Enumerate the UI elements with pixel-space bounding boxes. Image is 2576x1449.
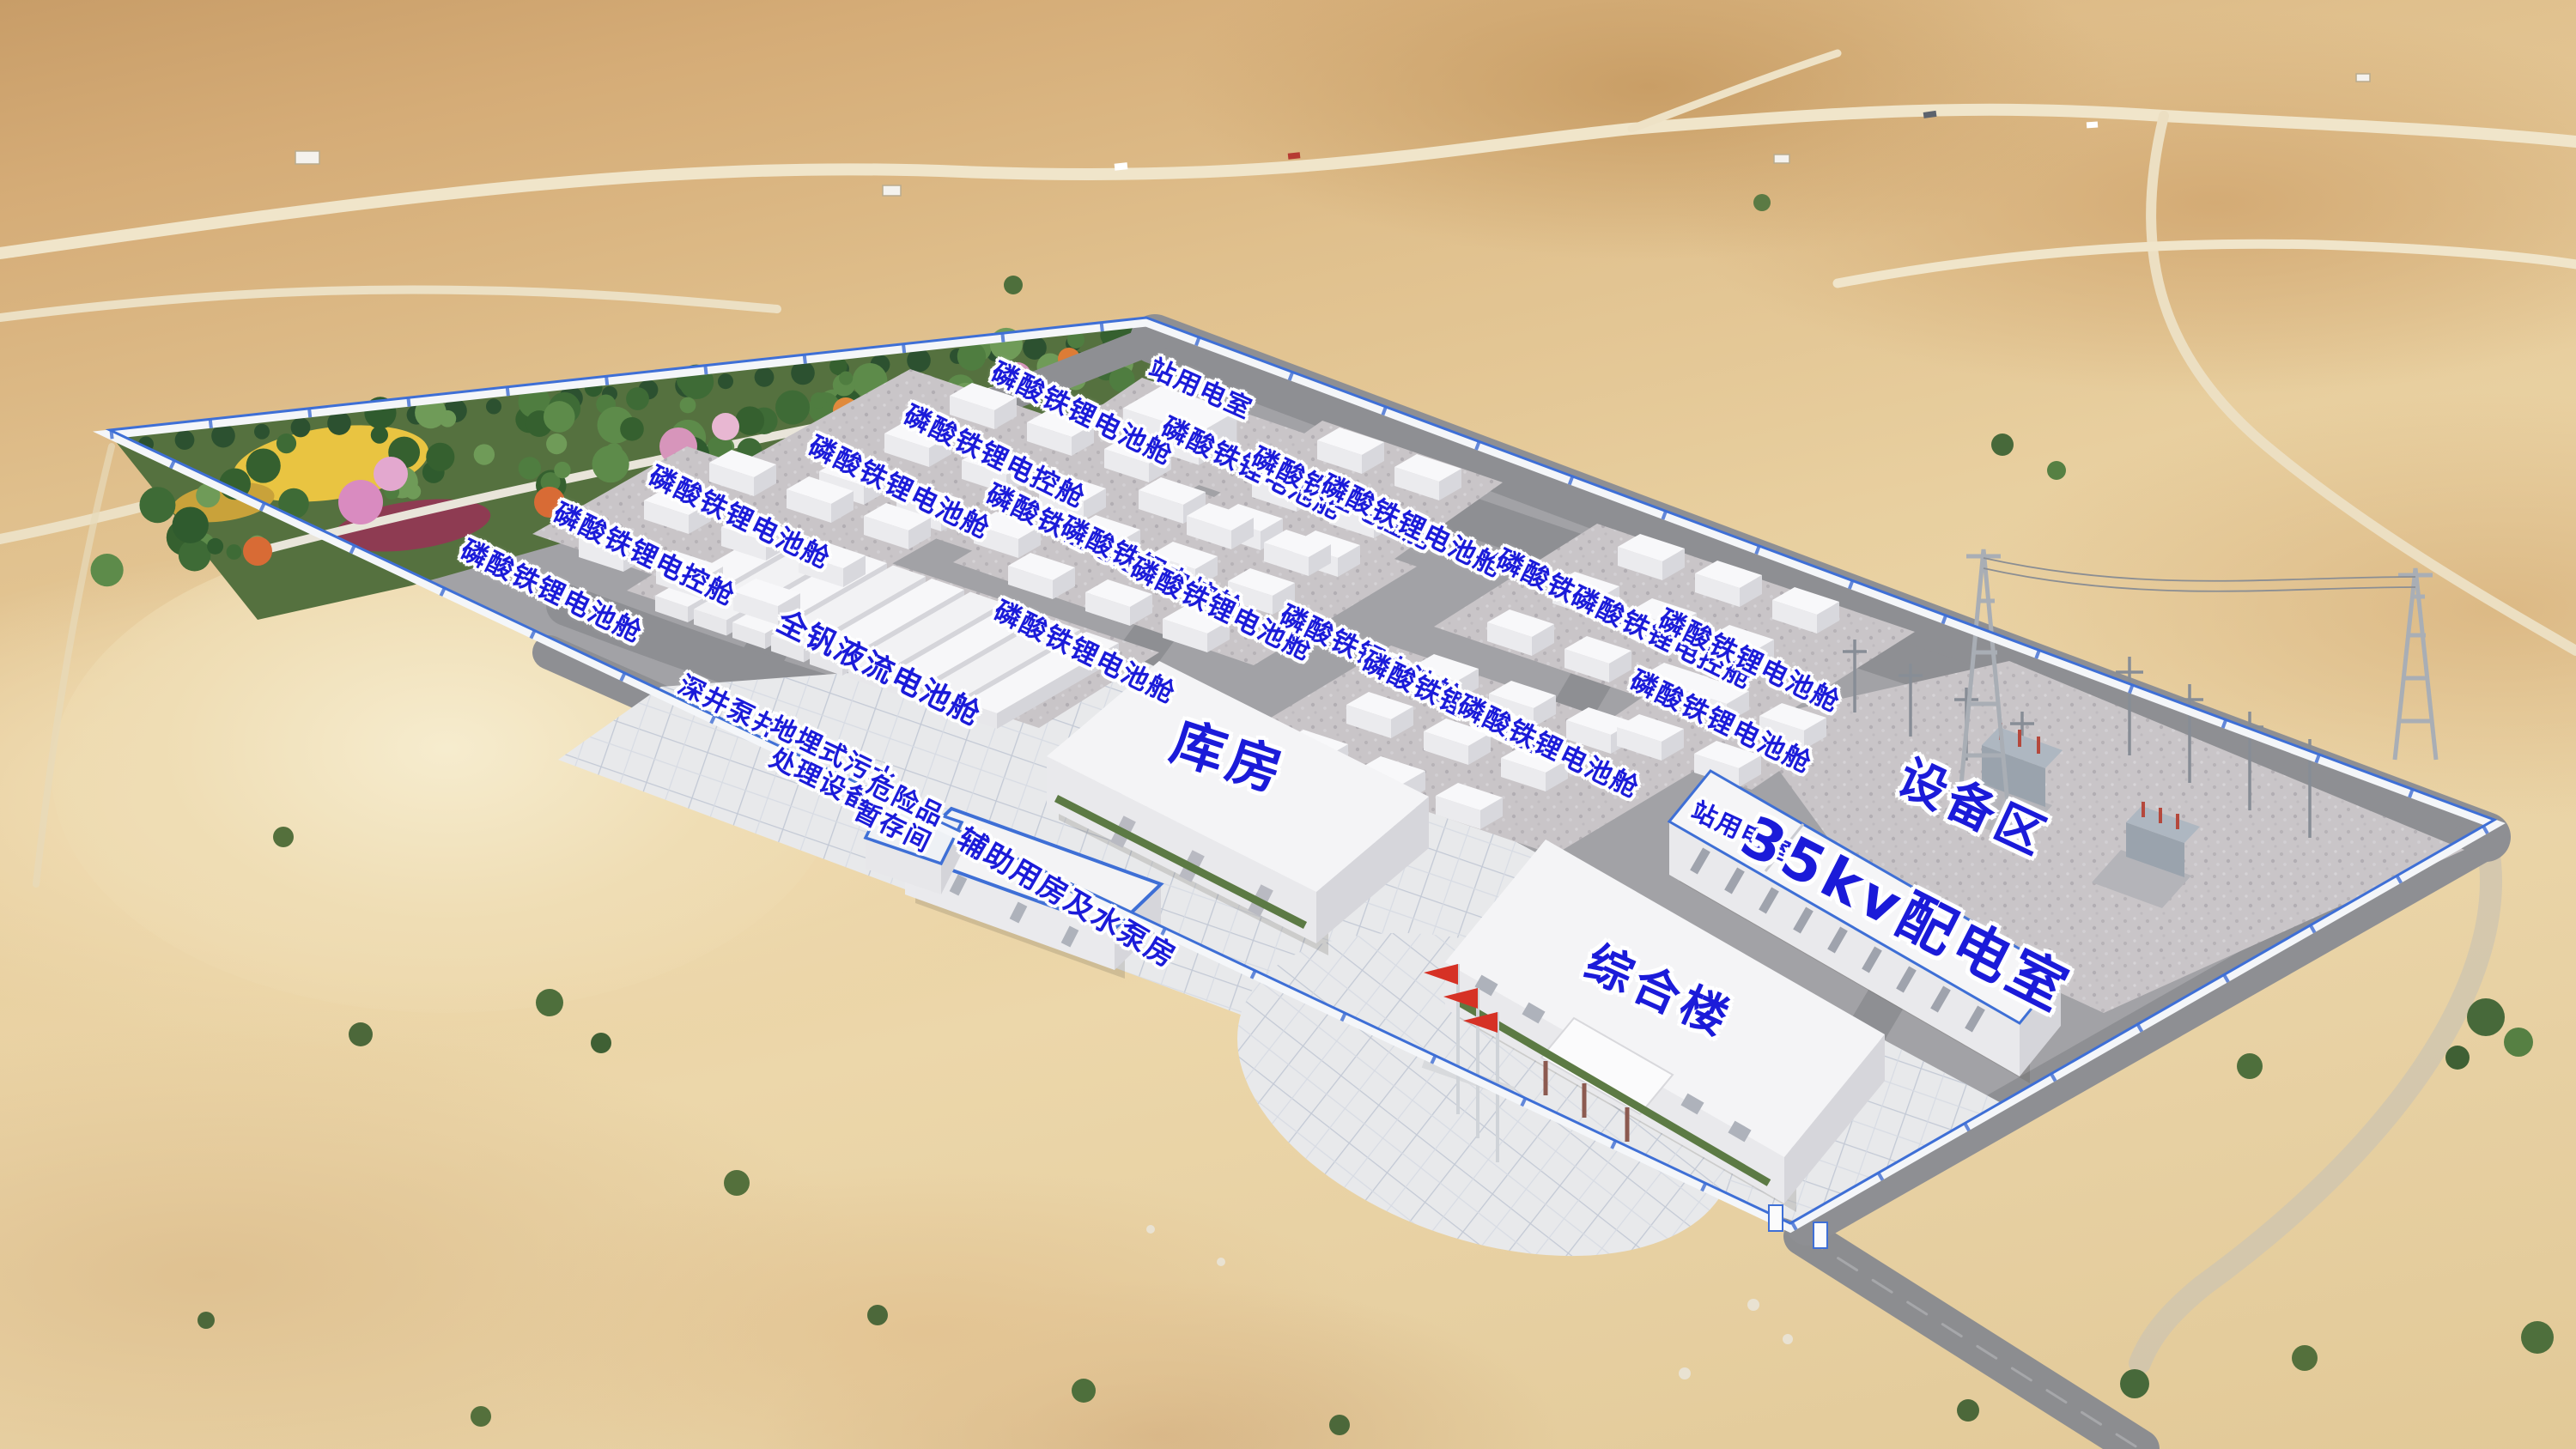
transmission-wires (1984, 558, 2415, 591)
site-rendering-svg (0, 0, 2576, 1449)
park-tree (736, 406, 765, 435)
cypress-tree (291, 418, 311, 438)
accent-tree (243, 537, 272, 566)
accent-tree (712, 413, 739, 440)
accent-tree (338, 480, 383, 524)
accent-tree (534, 487, 565, 518)
park-tree (179, 539, 211, 572)
park-tree (246, 448, 281, 482)
park-tree (544, 401, 575, 433)
cypress-tree (718, 373, 733, 389)
desert-vehicles (1115, 111, 2099, 171)
park-tree (173, 506, 209, 543)
park-tree (620, 417, 644, 441)
park-tree (592, 446, 629, 482)
park-tree (811, 392, 827, 409)
park-tree (227, 544, 242, 560)
lattice-tower-icon (2395, 568, 2436, 760)
cypress-tree (175, 430, 195, 450)
cypress-tree (254, 424, 270, 440)
park-tree (91, 554, 124, 586)
park-tree (426, 443, 454, 471)
park-tree (207, 538, 223, 555)
accent-tree (374, 457, 408, 491)
cypress-tree (486, 399, 501, 415)
park-tree (139, 487, 175, 523)
park-tree (775, 391, 810, 425)
park-tree (554, 462, 570, 478)
desert-rocks (1146, 1225, 1793, 1379)
park-tree (519, 457, 541, 479)
park-tree (371, 427, 388, 444)
cypress-tree (755, 367, 775, 387)
park-tree (839, 371, 853, 385)
park-tree (276, 433, 296, 453)
park-tree (626, 387, 649, 410)
park-tree (474, 444, 495, 464)
park-tree (680, 397, 696, 414)
aerial-site-rendering: 站用电室磷酸铁锂电池舱磷酸铁锂电控舱磷酸铁锂电池舱磷酸铁锂电池舱磷酸铁锂电控舱磷… (0, 0, 2576, 1449)
park-tree (546, 433, 567, 454)
